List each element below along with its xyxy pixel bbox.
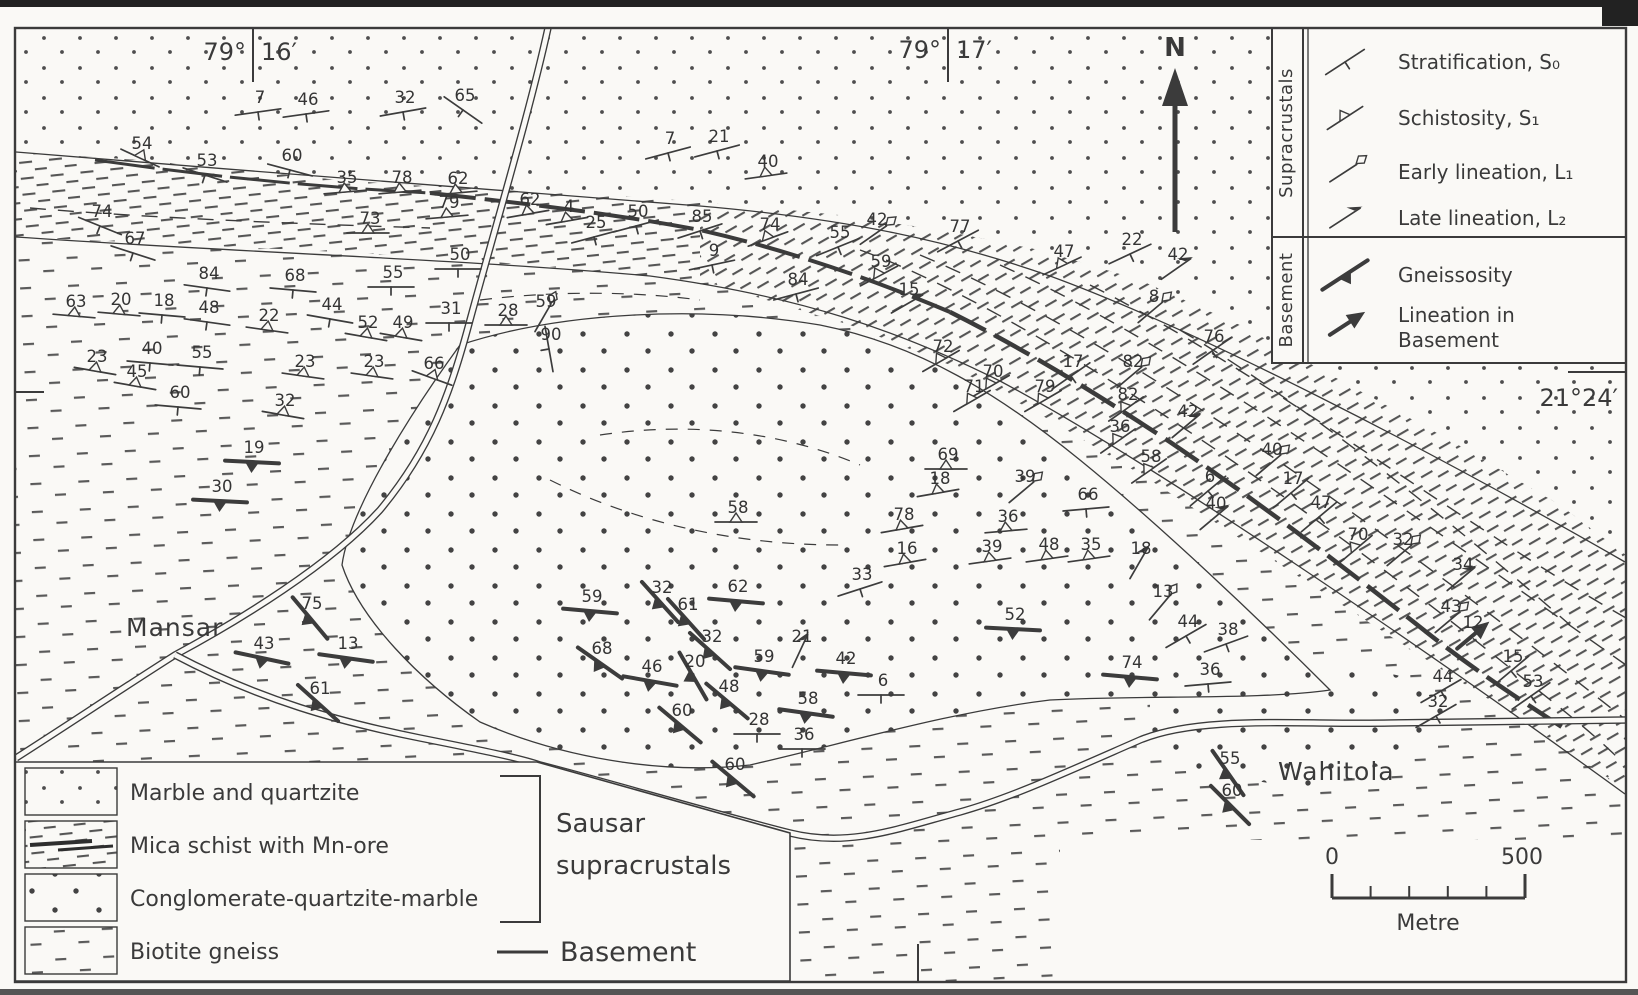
svg-text:36: 36 (1110, 417, 1131, 436)
svg-text:44: 44 (1433, 667, 1454, 686)
svg-text:40: 40 (142, 339, 163, 358)
svg-text:84: 84 (199, 264, 220, 283)
svg-text:7: 7 (255, 88, 266, 107)
place-label-wahitola: Wahitola (1278, 757, 1395, 786)
scan-edge-bottom (0, 989, 1638, 995)
svg-text:4: 4 (564, 197, 575, 216)
svg-text:42: 42 (1168, 245, 1189, 264)
svg-text:50: 50 (450, 245, 471, 264)
svg-text:22: 22 (259, 306, 280, 325)
svg-text:17: 17 (1063, 352, 1084, 371)
svg-text:35: 35 (337, 168, 358, 187)
svg-text:70: 70 (1348, 525, 1369, 544)
svg-text:54: 54 (132, 134, 153, 153)
svg-text:18: 18 (154, 291, 175, 310)
svg-text:62: 62 (448, 169, 469, 188)
svg-text:62: 62 (520, 190, 541, 209)
lithology-label-biotite-gneiss: Biotite gneiss (130, 940, 279, 965)
scan-edge-corner (1602, 0, 1638, 26)
svg-text:23: 23 (295, 352, 316, 371)
svg-text:21: 21 (792, 627, 813, 646)
svg-text:47: 47 (1054, 242, 1075, 261)
svg-text:48: 48 (1039, 535, 1060, 554)
svg-text:82: 82 (1118, 385, 1139, 404)
svg-text:61: 61 (678, 595, 699, 614)
svg-text:53: 53 (1523, 672, 1544, 691)
svg-text:84: 84 (788, 270, 809, 289)
svg-text:36: 36 (1200, 660, 1221, 679)
svg-text:75: 75 (302, 594, 323, 613)
svg-text:44: 44 (1178, 612, 1199, 631)
svg-text:40: 40 (758, 152, 779, 171)
svg-text:23: 23 (364, 352, 385, 371)
svg-text:32: 32 (652, 578, 673, 597)
svg-text:79: 79 (439, 193, 460, 212)
svg-text:39: 39 (982, 537, 1003, 556)
coordinate-79-deg-west: 79° (203, 38, 246, 66)
scale-start-label: 0 (1325, 845, 1339, 870)
svg-text:13: 13 (338, 634, 359, 653)
svg-text:78: 78 (392, 168, 413, 187)
svg-text:8: 8 (1149, 287, 1160, 306)
legend-label-schistosity: Schistosity, S₁ (1398, 106, 1540, 130)
svg-text:55: 55 (1220, 749, 1241, 768)
svg-text:74: 74 (760, 215, 781, 234)
coordinate-21-24: 21°24′ (1539, 384, 1618, 412)
svg-text:25: 25 (586, 213, 607, 232)
svg-text:72: 72 (933, 337, 954, 356)
svg-text:12: 12 (1463, 613, 1484, 632)
svg-text:70: 70 (983, 362, 1004, 381)
svg-text:59: 59 (582, 587, 603, 606)
svg-text:68: 68 (592, 639, 613, 658)
group-label-sausar-2: supracrustals (556, 851, 731, 881)
structural-legend: Supracrustals Basement Stratification, S… (1272, 28, 1626, 363)
svg-text:74: 74 (92, 202, 113, 221)
svg-text:36: 36 (794, 725, 815, 744)
svg-text:20: 20 (685, 652, 706, 671)
svg-text:62: 62 (728, 577, 749, 596)
svg-text:40: 40 (1262, 440, 1283, 459)
svg-text:55: 55 (830, 223, 851, 242)
svg-text:33: 33 (852, 565, 873, 584)
conglomerate-swatch (25, 874, 117, 921)
legend-label-basement-lineation-1: Lineation in (1398, 303, 1515, 327)
legend-label-early-lineation: Early lineation, L₁ (1398, 160, 1573, 184)
svg-text:42: 42 (867, 210, 888, 229)
svg-text:32: 32 (1428, 692, 1449, 711)
svg-text:28: 28 (498, 301, 519, 320)
svg-text:48: 48 (719, 677, 740, 696)
svg-text:38: 38 (1218, 620, 1239, 639)
coordinate-79-deg-east: 79° (898, 36, 941, 64)
svg-text:68: 68 (285, 266, 306, 285)
svg-text:58: 58 (728, 498, 749, 517)
svg-text:32: 32 (275, 391, 296, 410)
svg-text:43: 43 (254, 634, 275, 653)
svg-text:59: 59 (871, 252, 892, 271)
svg-text:78: 78 (894, 505, 915, 524)
map-canvas: 7463265545360746735786279624732550857455… (0, 0, 1638, 995)
svg-text:6: 6 (878, 671, 889, 690)
svg-text:52: 52 (1005, 605, 1026, 624)
svg-text:82: 82 (1123, 352, 1144, 371)
legend-group-supracrustals: Supracrustals (1276, 68, 1297, 198)
svg-text:34: 34 (1453, 555, 1474, 574)
legend-label-stratification: Stratification, S₀ (1398, 50, 1560, 74)
svg-text:20: 20 (111, 290, 132, 309)
scale-end-label: 500 (1501, 845, 1543, 870)
svg-text:74: 74 (1122, 653, 1143, 672)
svg-text:79: 79 (1035, 377, 1056, 396)
svg-text:52: 52 (358, 313, 379, 332)
svg-text:53: 53 (197, 151, 218, 170)
svg-text:58: 58 (1141, 447, 1162, 466)
svg-text:22: 22 (1122, 230, 1143, 249)
place-label-mansar: Mansar (126, 613, 223, 642)
svg-text:28: 28 (749, 710, 770, 729)
svg-text:60: 60 (725, 755, 746, 774)
svg-text:36: 36 (998, 507, 1019, 526)
svg-text:18: 18 (1131, 539, 1152, 558)
svg-text:19: 19 (244, 438, 265, 457)
group-label-basement: Basement (560, 937, 696, 968)
svg-text:50: 50 (628, 202, 649, 221)
lithology-label-marble: Marble and quartzite (130, 781, 359, 806)
svg-text:6: 6 (1205, 467, 1216, 486)
svg-text:45: 45 (127, 362, 148, 381)
svg-text:66: 66 (424, 354, 445, 373)
svg-text:85: 85 (692, 207, 713, 226)
svg-text:39: 39 (1015, 467, 1036, 486)
marble-quartzite-swatch (25, 768, 117, 815)
svg-text:21: 21 (709, 127, 730, 146)
svg-text:35: 35 (1081, 535, 1102, 554)
svg-text:30: 30 (212, 477, 233, 496)
svg-text:77: 77 (950, 217, 971, 236)
biotite-gneiss-swatch (25, 927, 117, 974)
svg-text:71: 71 (964, 377, 985, 396)
svg-text:73: 73 (360, 209, 381, 228)
svg-text:63: 63 (66, 292, 87, 311)
svg-text:58: 58 (798, 689, 819, 708)
svg-text:31: 31 (441, 299, 462, 318)
svg-text:32: 32 (1393, 530, 1414, 549)
svg-text:7: 7 (665, 129, 676, 148)
svg-text:47: 47 (1311, 493, 1332, 512)
svg-text:55: 55 (383, 263, 404, 282)
lithology-label-mica-schist: Mica schist with Mn-ore (130, 834, 389, 859)
legend-label-gneissosity: Gneissosity (1398, 263, 1513, 287)
svg-text:60: 60 (1222, 781, 1243, 800)
svg-text:32: 32 (702, 627, 723, 646)
svg-text:42: 42 (1178, 402, 1199, 421)
svg-text:59: 59 (536, 292, 557, 311)
svg-text:60: 60 (672, 701, 693, 720)
svg-text:13: 13 (1153, 582, 1174, 601)
svg-text:9: 9 (709, 241, 720, 260)
lithology-label-conglomerate: Conglomerate-quartzite-marble (130, 887, 478, 912)
svg-text:32: 32 (395, 88, 416, 107)
legend-group-basement: Basement (1276, 253, 1297, 348)
group-label-sausar-1: Sausar (556, 809, 645, 839)
north-label: N (1164, 33, 1186, 63)
svg-text:66: 66 (1078, 485, 1099, 504)
svg-text:46: 46 (298, 90, 319, 109)
svg-text:42: 42 (836, 649, 857, 668)
svg-text:69: 69 (938, 445, 959, 464)
legend-label-basement-lineation-2: Basement (1398, 328, 1499, 352)
svg-text:43: 43 (1441, 597, 1462, 616)
scale-unit-label: Metre (1396, 911, 1459, 936)
svg-text:17: 17 (1283, 469, 1304, 488)
svg-text:61: 61 (310, 679, 331, 698)
coordinate-17-min: 17′ (956, 36, 992, 64)
geological-map-page: 7463265545360746735786279624732550857455… (0, 0, 1638, 995)
svg-text:44: 44 (322, 295, 343, 314)
svg-text:15: 15 (899, 280, 920, 299)
svg-text:90: 90 (541, 325, 562, 344)
svg-text:49: 49 (393, 313, 414, 332)
svg-text:23: 23 (87, 347, 108, 366)
svg-text:60: 60 (282, 146, 303, 165)
svg-text:40: 40 (1206, 494, 1227, 513)
svg-text:18: 18 (930, 469, 951, 488)
svg-text:59: 59 (754, 647, 775, 666)
coordinate-16-min: 16′ (261, 38, 297, 66)
svg-text:60: 60 (170, 383, 191, 402)
svg-text:48: 48 (199, 298, 220, 317)
svg-text:16: 16 (897, 539, 918, 558)
svg-text:46: 46 (642, 657, 663, 676)
svg-text:55: 55 (192, 343, 213, 362)
svg-text:67: 67 (125, 229, 146, 248)
svg-text:76: 76 (1204, 327, 1225, 346)
legend-label-late-lineation: Late lineation, L₂ (1398, 206, 1566, 230)
svg-text:65: 65 (455, 86, 476, 105)
svg-text:15: 15 (1503, 647, 1524, 666)
scan-edge-top (0, 0, 1638, 7)
